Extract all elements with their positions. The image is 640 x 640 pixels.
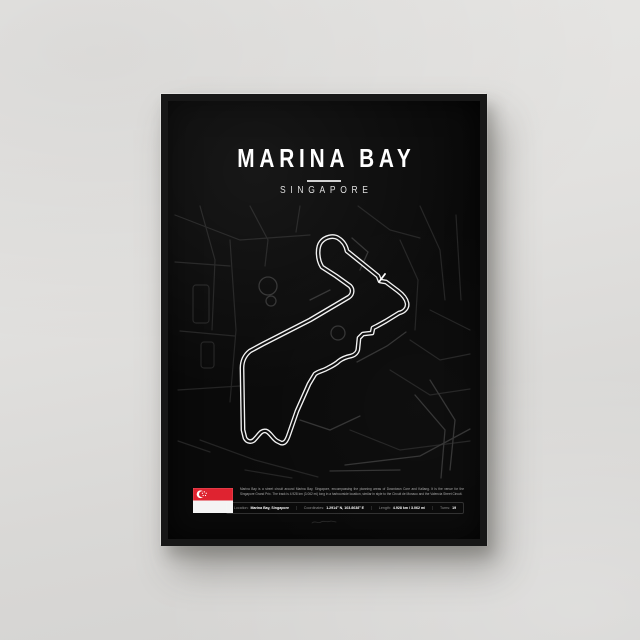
stat-location: Location: Marina Bay, Singapore [227,506,296,510]
map-roundabout-icon [259,277,277,295]
street-map-lines [175,206,470,478]
info-footer: Marina Bay is a street circuit around Ma… [168,486,480,518]
picture-frame: MARINA BAY SINGAPORE [161,94,487,546]
circuit-poster: MARINA BAY SINGAPORE [168,101,480,539]
circuit-map [168,101,480,539]
stats-bar: Location: Marina Bay, Singapore Coordina… [226,502,464,514]
stat-turns: Turns: 19 [432,506,463,510]
circuit-description: Marina Bay is a street circuit around Ma… [240,487,464,498]
circuit-track-outline [242,237,407,444]
product-photo: MARINA BAY SINGAPORE [0,0,640,640]
stat-length: Length: 4.928 km / 3.062 mi [371,506,432,510]
stat-coordinates: Coordinates: 1.2914° N, 103.8638° E [296,506,371,510]
signature-mark [311,519,337,525]
street-map-lines-bright [259,238,470,478]
